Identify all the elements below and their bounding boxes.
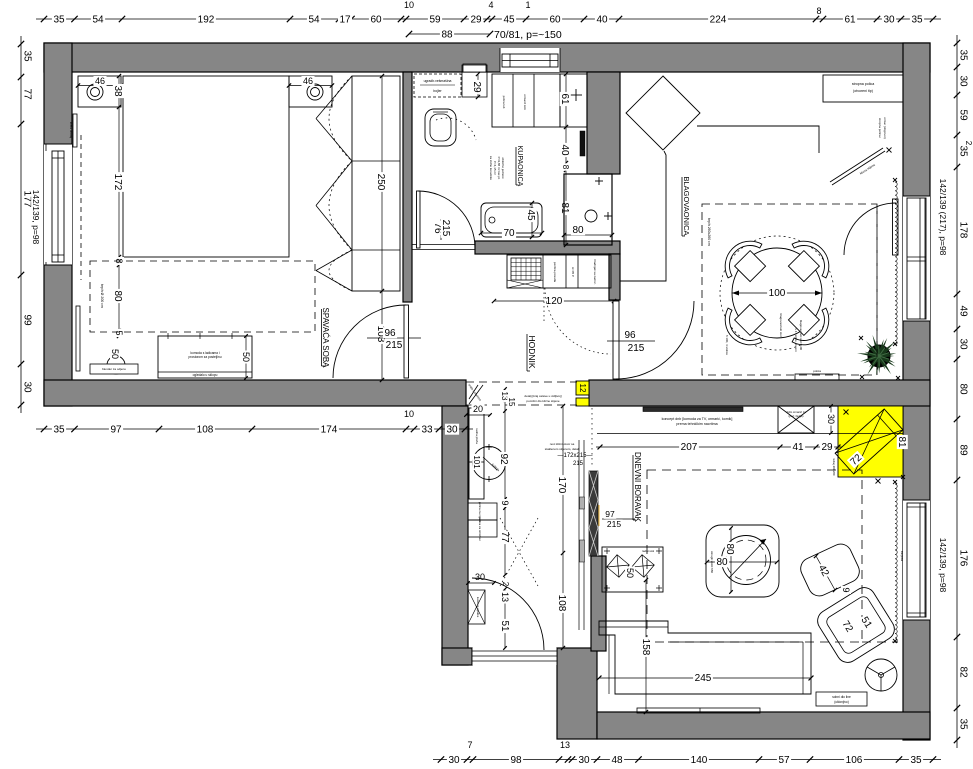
svg-text:30: 30 <box>958 338 969 350</box>
svg-text:40: 40 <box>596 15 608 26</box>
svg-text:177: 177 <box>22 191 33 208</box>
svg-text:13: 13 <box>500 592 510 602</box>
svg-text:30: 30 <box>475 572 485 582</box>
svg-text:82: 82 <box>958 666 969 678</box>
svg-text:polica tuš: polica tuš <box>502 96 506 109</box>
svg-text:245: 245 <box>695 673 712 684</box>
svg-text:101: 101 <box>472 455 481 469</box>
svg-text:detalj [kraj ostave u vidljivo: detalj [kraj ostave u vidljivoj] <box>524 394 561 398</box>
svg-text:ležaj 200x80: ležaj 200x80 <box>832 459 836 476</box>
svg-text:P=4,15 m²: P=4,15 m² <box>493 161 497 175</box>
svg-text:54: 54 <box>308 15 320 26</box>
svg-text:radni stol: radni stol <box>642 549 655 553</box>
svg-text:ugradb.vešmašina: ugradb.vešmašina <box>424 79 452 83</box>
svg-text:P=9,88 m² ker.pl.: P=9,88 m² ker.pl. <box>497 157 501 180</box>
svg-text:ogledalo u sklopu: ogledalo u sklopu <box>193 373 218 377</box>
svg-text:29: 29 <box>470 15 482 26</box>
svg-text:80: 80 <box>572 225 584 236</box>
svg-text:8: 8 <box>561 165 570 170</box>
svg-text:81: 81 <box>896 436 907 448</box>
svg-text:s 4 stolice, drveni: s 4 stolice, drveni <box>794 328 798 352</box>
svg-text:kanta za otpatke: kanta za otpatke <box>476 597 480 618</box>
svg-text:99: 99 <box>22 314 33 326</box>
svg-text:klima uređaj: klima uređaj <box>69 122 73 139</box>
svg-text:polica: polica <box>813 369 821 373</box>
svg-text:20: 20 <box>473 404 483 414</box>
svg-text:106: 106 <box>846 755 863 766</box>
svg-text:170: 170 <box>556 477 567 494</box>
svg-text:140: 140 <box>691 755 708 766</box>
svg-text:DNEVNI BORAVAK: DNEVNI BORAVAK <box>633 452 642 523</box>
svg-text:215: 215 <box>607 519 621 529</box>
svg-text:80: 80 <box>716 557 728 568</box>
svg-text:49: 49 <box>958 305 969 317</box>
svg-text:178: 178 <box>958 222 969 239</box>
svg-text:za zidne keramike: za zidne keramike <box>489 156 493 181</box>
svg-text:8: 8 <box>816 6 821 16</box>
svg-text:ormar (dogovor): ormar (dogovor) <box>883 117 887 139</box>
svg-text:pomični dio klizne stijene: pomični dio klizne stijene <box>526 399 560 403</box>
svg-text:98: 98 <box>510 755 522 766</box>
svg-text:30: 30 <box>883 15 895 26</box>
svg-text:45: 45 <box>525 209 536 221</box>
svg-text:192: 192 <box>198 15 215 26</box>
svg-text:9: 9 <box>500 500 510 505</box>
svg-text:142/139, p=98: 142/139, p=98 <box>938 538 948 593</box>
svg-text:35: 35 <box>53 15 65 26</box>
svg-text:96: 96 <box>384 328 396 339</box>
svg-text:7: 7 <box>467 740 472 750</box>
svg-text:BLAGOVAONICA: BLAGOVAONICA <box>682 176 691 235</box>
svg-text:staklenom stijenom, detalj: staklenom stijenom, detalj <box>545 447 580 451</box>
svg-text:60: 60 <box>549 15 561 26</box>
svg-text:158: 158 <box>640 639 651 656</box>
svg-text:176: 176 <box>958 550 969 567</box>
svg-text:50: 50 <box>625 568 635 578</box>
svg-text:SPAVAĆA SOBA: SPAVAĆA SOBA <box>321 307 330 368</box>
svg-text:17: 17 <box>339 15 351 26</box>
svg-text:35: 35 <box>958 145 969 157</box>
svg-text:48: 48 <box>611 755 623 766</box>
svg-text:61: 61 <box>559 93 570 105</box>
svg-text:97: 97 <box>605 509 615 519</box>
svg-text:77: 77 <box>499 531 510 543</box>
svg-text:35: 35 <box>958 718 969 730</box>
svg-text:215: 215 <box>628 343 645 354</box>
svg-text:30: 30 <box>446 425 458 436</box>
svg-text:89: 89 <box>958 444 969 456</box>
svg-text:108: 108 <box>197 425 214 436</box>
svg-text:10: 10 <box>404 409 414 419</box>
svg-text:2: 2 <box>964 141 973 146</box>
svg-text:30: 30 <box>448 755 460 766</box>
svg-text:35: 35 <box>22 50 33 62</box>
svg-text:30: 30 <box>958 75 969 87</box>
svg-text:blagovaonski stol fi100: blagovaonski stol fi100 <box>799 320 803 351</box>
svg-text:stropna polica: stropna polica <box>852 82 874 86</box>
svg-text:46: 46 <box>95 76 105 86</box>
svg-text:120: 120 <box>546 296 563 307</box>
svg-text:60: 60 <box>370 15 382 26</box>
svg-text:H=45 P: H=45 P <box>571 267 575 277</box>
svg-text:224: 224 <box>710 15 727 26</box>
svg-text:fi 100, 4 stolice: fi 100, 4 stolice <box>725 335 729 355</box>
svg-text:1: 1 <box>525 0 530 10</box>
svg-text:100: 100 <box>769 288 786 299</box>
svg-text:61: 61 <box>844 15 856 26</box>
svg-text:polica za sitničavi: polica za sitničavi <box>478 517 482 541</box>
svg-text:blender za odjenu: blender za odjenu <box>102 367 126 371</box>
svg-text:novi klizni otvor sa: novi klizni otvor sa <box>550 442 575 446</box>
svg-text:(poć i lješje): (poć i lješje) <box>789 414 804 418</box>
svg-text:35: 35 <box>958 49 969 61</box>
svg-text:46: 46 <box>303 76 313 86</box>
svg-text:80: 80 <box>724 543 735 555</box>
svg-text:4: 4 <box>488 0 493 10</box>
svg-text:33: 33 <box>421 425 433 436</box>
svg-text:5: 5 <box>114 330 124 335</box>
svg-text:koncept dnb [komoda za TV, orm: koncept dnb [komoda za TV, ormarić, komi… <box>662 417 733 421</box>
svg-text:97: 97 <box>110 425 122 436</box>
svg-text:174: 174 <box>321 425 338 436</box>
svg-text:142/139, p=98: 142/139, p=98 <box>31 190 41 245</box>
svg-text:70/81, p=~150: 70/81, p=~150 <box>494 29 562 41</box>
svg-text:prostorom za posteljinu: prostorom za posteljinu <box>189 355 222 359</box>
svg-text:29: 29 <box>821 442 833 453</box>
svg-text:(uklonjivo): (uklonjivo) <box>834 700 849 704</box>
svg-text:215: 215 <box>386 340 403 351</box>
svg-text:45: 45 <box>503 15 515 26</box>
svg-text:250: 250 <box>375 174 386 191</box>
svg-text:29: 29 <box>471 81 482 93</box>
svg-text:tepih Ø 200 cm: tepih Ø 200 cm <box>100 284 104 308</box>
svg-text:(otvoreni tip): (otvoreni tip) <box>853 89 873 93</box>
svg-text:hladnjak sa zamrz.: hladnjak sa zamrz. <box>593 259 597 284</box>
svg-text:172: 172 <box>112 174 123 191</box>
svg-text:radna ploča: radna ploča <box>475 428 479 444</box>
svg-text:35: 35 <box>910 755 922 766</box>
svg-text:9: 9 <box>841 587 851 592</box>
svg-text:30: 30 <box>826 414 836 424</box>
svg-text:70: 70 <box>503 228 515 239</box>
svg-text:obložno jednost: obložno jednost <box>501 157 505 178</box>
svg-text:51: 51 <box>499 620 510 632</box>
svg-text:88: 88 <box>441 30 453 41</box>
svg-text:96: 96 <box>624 330 636 341</box>
svg-text:KUPAONICA: KUPAONICA <box>516 146 523 187</box>
svg-text:215: 215 <box>440 220 451 237</box>
svg-text:35: 35 <box>53 425 65 436</box>
svg-text:59: 59 <box>958 109 969 121</box>
svg-text:80: 80 <box>112 290 123 302</box>
svg-text:perilica posuđa: perilica posuđa <box>553 262 557 283</box>
svg-text:92: 92 <box>498 453 509 465</box>
svg-text:zavjesa: zavjesa <box>900 551 904 562</box>
svg-text:50: 50 <box>110 349 120 359</box>
svg-text:prema tehničkim nacrtima: prema tehničkim nacrtima <box>676 422 717 426</box>
svg-text:tepih 260x260 cm: tepih 260x260 cm <box>707 218 711 246</box>
svg-text:10: 10 <box>404 0 414 10</box>
svg-text:108: 108 <box>556 595 567 612</box>
svg-text:blagovaonski stol: blagovaonski stol <box>779 313 783 336</box>
svg-text:142/139 (217), p=98: 142/139 (217), p=98 <box>938 179 948 256</box>
svg-text:—172x215—: —172x215— <box>557 453 592 459</box>
svg-text:59: 59 <box>429 15 441 26</box>
svg-text:215: 215 <box>573 461 584 467</box>
svg-text:57: 57 <box>778 755 790 766</box>
svg-text:HODNIK: HODNIK <box>527 335 537 368</box>
svg-text:bojler: bojler <box>433 89 442 93</box>
svg-text:30: 30 <box>22 381 33 393</box>
svg-text:stropna polica i: stropna polica i <box>878 118 882 139</box>
svg-text:40: 40 <box>559 144 570 156</box>
svg-text:30: 30 <box>578 755 590 766</box>
svg-text:ormarić koš: ormarić koš <box>523 94 527 110</box>
svg-text:38: 38 <box>112 85 123 97</box>
svg-text:80: 80 <box>958 383 969 395</box>
svg-text:50: 50 <box>241 352 251 362</box>
svg-text:15: 15 <box>507 398 516 407</box>
svg-text:12: 12 <box>578 384 587 393</box>
svg-text:54: 54 <box>92 15 104 26</box>
svg-text:35: 35 <box>911 15 923 26</box>
svg-text:207: 207 <box>681 442 698 453</box>
svg-text:sobni dio line: sobni dio line <box>832 695 851 699</box>
svg-text:41: 41 <box>792 442 804 453</box>
svg-text:77: 77 <box>22 88 33 100</box>
svg-text:13: 13 <box>560 740 570 750</box>
svg-text:okrugli stolić fi80: okrugli stolić fi80 <box>710 551 714 574</box>
